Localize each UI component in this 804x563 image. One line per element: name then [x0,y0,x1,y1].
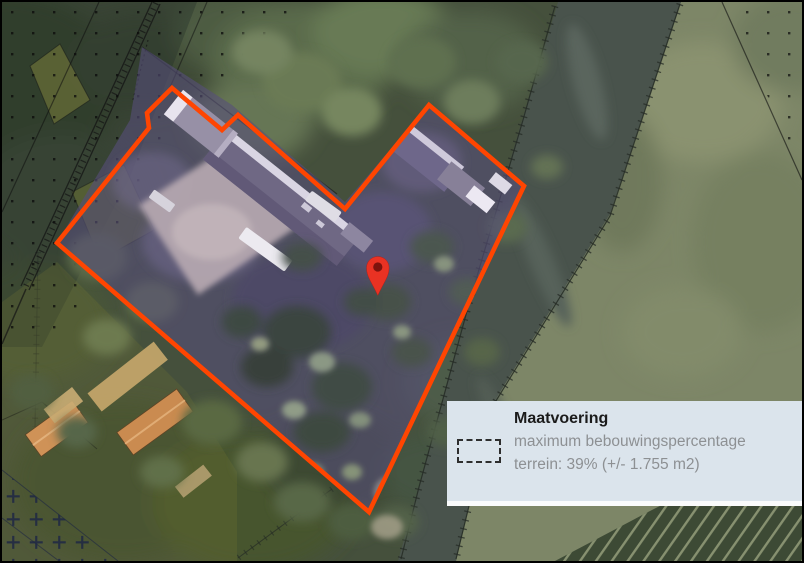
legend-panel: Maatvoering maximum bebouwingspercentage… [447,401,802,506]
dashed-rectangle-icon [457,439,501,463]
legend-description-line1: maximum bebouwingspercentage [514,430,746,453]
map-canvas[interactable]: Maatvoering maximum bebouwingspercentage… [0,0,804,563]
legend-description-line2: terrein: 39% (+/- 1.755 m2) [514,453,746,476]
legend-title: Maatvoering [514,407,746,430]
